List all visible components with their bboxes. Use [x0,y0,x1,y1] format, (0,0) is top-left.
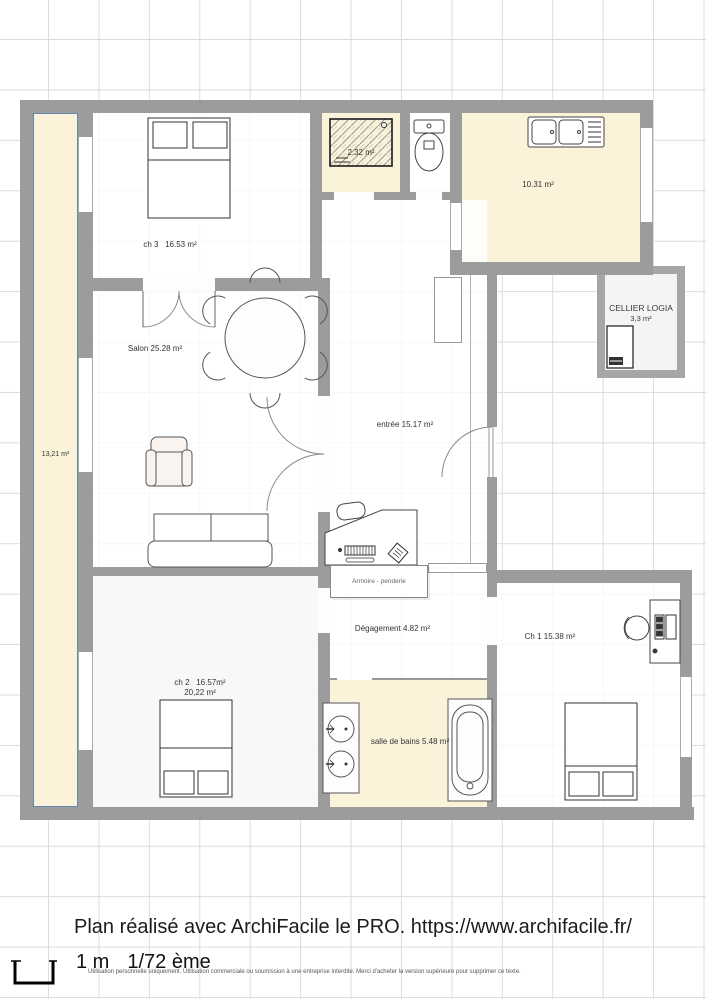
appliance-icon [607,326,633,368]
office-chair-icon [624,616,649,640]
armchair-icon [146,437,192,486]
room-label-salon: Salon 25.28 m² [100,344,210,354]
wardrobe-label: Armoire - penderie [352,578,406,585]
room-label-ch3: ch 3 16.53 m² [110,240,230,250]
bathtub-icon [448,699,492,801]
room-label-shower: 2.32 m² [330,148,392,158]
room-label-salle-de-bains: salle de bains 5.48 m² [345,737,475,747]
room-label-ch2: ch 2 16.57m² [140,678,260,688]
kitchen-sink-icon [528,117,604,147]
shower-icon [330,119,392,166]
room-label-ch2-area: 20,22 m² [140,688,260,698]
washbasin-icon [323,703,359,793]
sofa-icon [148,514,272,567]
room-label-entree: entrée 15.17 m² [350,420,460,430]
scale-ratio: 1/72 ème [127,951,210,973]
scale-value: 1 m [76,951,109,973]
double-bed-icon [160,700,232,797]
dining-table-icon [197,268,333,408]
toilet-icon [414,120,444,171]
door-swing-icon [143,291,493,511]
wardrobe: Armoire - penderie [330,565,428,598]
desk-icon [624,600,680,663]
double-bed-icon [148,118,230,218]
scale-bracket-icon [11,961,57,983]
room-label-cellier-title: CELLIER LOGIA [597,303,685,313]
room-label-cellier-area: 3,3 m² [597,314,685,323]
double-bed-icon [565,703,637,800]
floor-plan-canvas: ch 3 16.53 m² Salon 25.28 m² entrée 15.1… [0,0,706,999]
room-label-degagement: Dégagement 4.82 m² [335,624,450,634]
room-label-balcony: 13,21 m² [33,450,78,460]
scale-label: 1 m1/72 ème [76,951,211,974]
room-label-kitchen: 10.31 m² [503,180,573,190]
room-label-ch1: Ch 1 15.38 m² [505,632,595,642]
footer-credit: Plan réalisé avec ArchiFacile le PRO. ht… [0,916,706,939]
desk-icon [325,501,417,565]
